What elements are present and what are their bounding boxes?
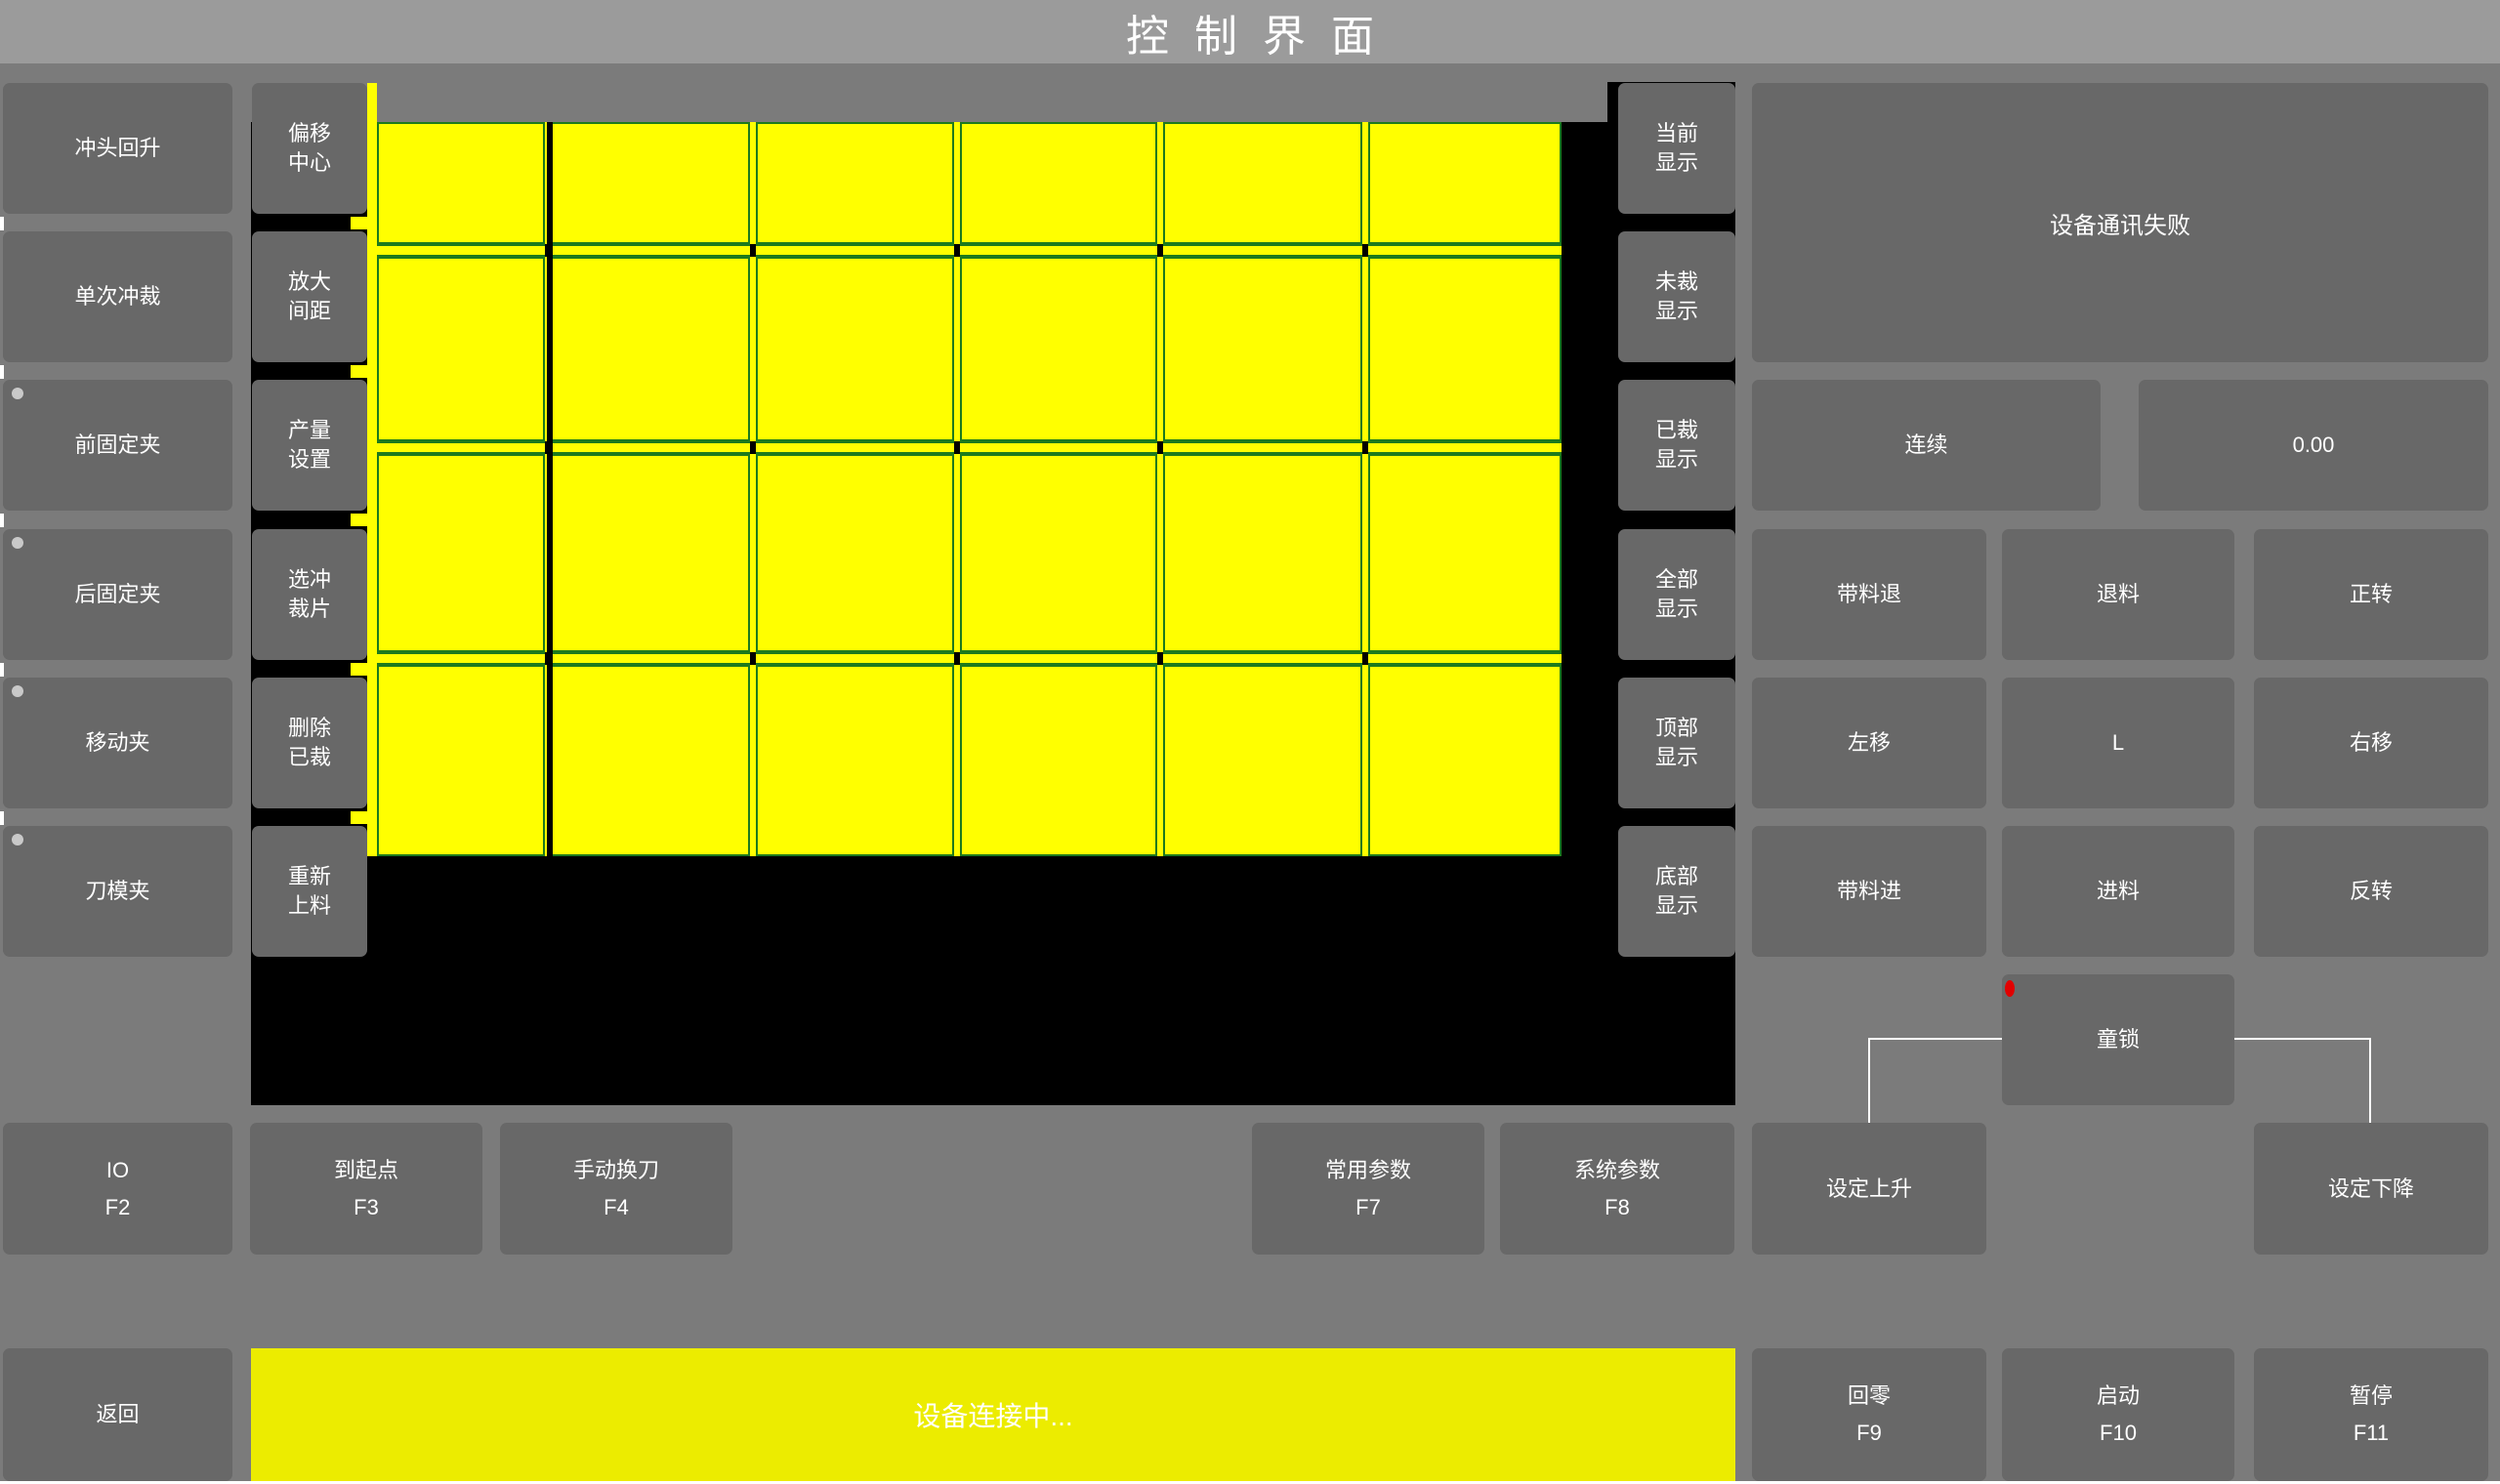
- button-label: 间距: [288, 297, 331, 326]
- button-label: 放大: [288, 268, 331, 297]
- button-label: 显示: [1655, 445, 1698, 474]
- manual-tool-change-f4-button[interactable]: 手动换刀 F4: [500, 1123, 732, 1255]
- move-left-button[interactable]: 左移: [1752, 678, 1986, 808]
- separator-segment: [377, 652, 545, 665]
- button-label: 选冲: [288, 565, 331, 595]
- button-label: 显示: [1655, 148, 1698, 178]
- left-edge-tick: [0, 663, 4, 677]
- button-label: 设定上升: [1826, 1175, 1912, 1204]
- button-label: 已裁: [1655, 416, 1698, 445]
- grid-row: [377, 257, 1562, 441]
- move-right-button[interactable]: 右移: [2254, 678, 2488, 808]
- offset-center-button[interactable]: 偏移 中心: [252, 83, 367, 214]
- button-label: 返回: [96, 1400, 139, 1429]
- button-label: 后固定夹: [74, 580, 160, 609]
- value-display[interactable]: 0.00: [2139, 380, 2488, 511]
- grid-cell[interactable]: [551, 665, 750, 856]
- grid-row: [377, 122, 1562, 244]
- grid-cell[interactable]: [377, 665, 545, 856]
- io-f2-button[interactable]: IO F2: [3, 1123, 232, 1255]
- separator-segment: [551, 652, 750, 665]
- separator-segment: [960, 441, 1157, 454]
- child-lock-button[interactable]: 童锁: [2002, 974, 2234, 1105]
- button-label: 退料: [2097, 580, 2140, 609]
- button-label: 顶部: [1655, 714, 1698, 743]
- strip-tab: [351, 217, 368, 229]
- button-label: 设定下降: [2328, 1175, 2414, 1204]
- button-label: 带料进: [1837, 877, 1901, 906]
- single-punch-button[interactable]: 单次冲裁: [3, 231, 232, 362]
- grid-cell[interactable]: [960, 257, 1157, 441]
- fkey-label: F10: [2100, 1419, 2137, 1448]
- button-label: 常用参数: [1325, 1156, 1411, 1185]
- separator-segment: [551, 244, 750, 257]
- select-piece-button[interactable]: 选冲 裁片: [252, 529, 367, 660]
- reload-material-button[interactable]: 重新 上料: [252, 826, 367, 957]
- rear-clamp-button[interactable]: 后固定夹: [3, 529, 232, 660]
- left-edge-tick: [0, 217, 4, 230]
- continuous-mode-button[interactable]: 连续: [1752, 380, 2101, 511]
- grid-cell[interactable]: [1368, 665, 1562, 856]
- grid-cell[interactable]: [756, 122, 954, 244]
- set-lower-button[interactable]: 设定下降: [2254, 1123, 2488, 1255]
- state-indicator: [12, 834, 23, 845]
- strip-tab: [351, 663, 368, 676]
- button-label: 删除: [288, 714, 331, 743]
- separator-segment: [1163, 244, 1362, 257]
- left-edge-tick: [0, 514, 4, 527]
- back-button[interactable]: 返回: [3, 1348, 232, 1481]
- button-label: 暂停: [2350, 1381, 2393, 1411]
- die-clamp-button[interactable]: 刀模夹: [3, 826, 232, 957]
- forward-rotate-button[interactable]: 正转: [2254, 529, 2488, 660]
- cut-grid: [377, 122, 1562, 856]
- connector-line: [1868, 1038, 2002, 1040]
- strip-feed-button[interactable]: 带料进: [1752, 826, 1986, 957]
- fkey-label: F4: [604, 1193, 629, 1222]
- button-label: 显示: [1655, 891, 1698, 921]
- connector-line: [2369, 1038, 2371, 1123]
- fkey-label: F7: [1355, 1193, 1381, 1222]
- fkey-label: F8: [1604, 1193, 1630, 1222]
- separator-segment: [756, 244, 954, 257]
- connection-status-text: 设备连接中...: [913, 1395, 1072, 1434]
- connector-line: [1868, 1038, 1870, 1123]
- strip-tab: [351, 811, 368, 824]
- button-label: 刀模夹: [85, 877, 149, 906]
- start-f10-button[interactable]: 启动 F10: [2002, 1348, 2234, 1481]
- button-label: 移动夹: [85, 728, 149, 758]
- grid-cell[interactable]: [1163, 122, 1362, 244]
- separator-segment: [756, 652, 954, 665]
- fkey-label: F3: [354, 1193, 379, 1222]
- view-cut-button[interactable]: 已裁 显示: [1618, 380, 1735, 511]
- grid-cell[interactable]: [1163, 257, 1362, 441]
- left-edge-tick: [0, 811, 4, 825]
- button-label: 重新: [288, 862, 331, 891]
- button-label: 手动换刀: [573, 1156, 659, 1185]
- strip-back-button[interactable]: 带料退: [1752, 529, 1986, 660]
- fkey-label: F9: [1856, 1419, 1882, 1448]
- button-label: 设置: [288, 445, 331, 474]
- strip-tab: [351, 365, 368, 378]
- control-screen: { "title_bar": { "title": "控制界面" }, "lef…: [0, 0, 2500, 1484]
- title-bar: 控制界面: [0, 0, 2500, 63]
- grid-cell[interactable]: [1368, 122, 1562, 244]
- grid-cell[interactable]: [1368, 454, 1562, 652]
- button-label: 系统参数: [1574, 1156, 1660, 1185]
- fkey-label: F2: [105, 1193, 131, 1222]
- button-label: 上料: [288, 891, 331, 921]
- button-label: 未裁: [1655, 268, 1698, 297]
- button-label: 裁片: [288, 595, 331, 624]
- view-bottom-button[interactable]: 底部 显示: [1618, 826, 1735, 957]
- view-top-button[interactable]: 顶部 显示: [1618, 678, 1735, 808]
- fkey-label: F11: [2354, 1419, 2389, 1448]
- button-label: 连续: [1904, 431, 1947, 460]
- strip-tab: [351, 514, 368, 526]
- grid-row-separator: [377, 441, 1562, 454]
- grid-cell[interactable]: [551, 454, 750, 652]
- punch-return-button[interactable]: 冲头回升: [3, 83, 232, 214]
- grid-cell[interactable]: [377, 122, 545, 244]
- status-message-text: 设备通讯失败: [2050, 206, 2190, 240]
- button-label: 已裁: [288, 743, 331, 772]
- go-start-f3-button[interactable]: 到起点 F3: [250, 1123, 482, 1255]
- separator-segment: [551, 441, 750, 454]
- separator-segment: [1368, 441, 1562, 454]
- film-strip: [367, 83, 377, 856]
- button-label: L: [2112, 728, 2124, 758]
- grid-cell[interactable]: [551, 257, 750, 441]
- button-label: 冲头回升: [74, 134, 160, 163]
- view-uncut-button[interactable]: 未裁 显示: [1618, 231, 1735, 362]
- separator-segment: [377, 244, 545, 257]
- grid-cell[interactable]: [756, 665, 954, 856]
- button-label: 全部: [1655, 565, 1698, 595]
- grid-row-separator: [377, 244, 1562, 257]
- grid-cell[interactable]: [756, 257, 954, 441]
- reverse-rotate-button[interactable]: 反转: [2254, 826, 2488, 957]
- button-label: 偏移: [288, 119, 331, 148]
- grid-cell[interactable]: [377, 257, 545, 441]
- button-label: 到起点: [334, 1156, 398, 1185]
- enlarge-spacing-button[interactable]: 放大 间距: [252, 231, 367, 362]
- system-params-f8-button[interactable]: 系统参数 F8: [1500, 1123, 1734, 1255]
- delete-cut-button[interactable]: 删除 已裁: [252, 678, 367, 808]
- separator-segment: [1163, 652, 1362, 665]
- separator-segment: [377, 441, 545, 454]
- value-text: 0.00: [2293, 431, 2335, 460]
- grid-cell[interactable]: [960, 665, 1157, 856]
- button-label: 当前: [1655, 119, 1698, 148]
- connector-line: [2234, 1038, 2371, 1040]
- button-label: 右移: [2350, 728, 2393, 758]
- grid-cell[interactable]: [1163, 454, 1362, 652]
- state-indicator: [12, 685, 23, 697]
- button-label: 底部: [1655, 862, 1698, 891]
- grid-row: [377, 454, 1562, 652]
- lock-l-button[interactable]: L: [2002, 678, 2234, 808]
- view-all-button[interactable]: 全部 显示: [1618, 529, 1735, 660]
- grid-cell[interactable]: [960, 454, 1157, 652]
- view-current-button[interactable]: 当前 显示: [1618, 83, 1735, 214]
- moving-clamp-button[interactable]: 移动夹: [3, 678, 232, 808]
- feed-button[interactable]: 进料: [2002, 826, 2234, 957]
- connection-status-bar: 设备连接中...: [251, 1348, 1735, 1481]
- left-edge-tick: [0, 365, 4, 379]
- grid-cell[interactable]: [756, 454, 954, 652]
- state-indicator: [12, 537, 23, 549]
- common-params-f7-button[interactable]: 常用参数 F7: [1252, 1123, 1484, 1255]
- page-title: 控制界面: [1101, 1, 1399, 63]
- grid-row-separator: [377, 652, 1562, 665]
- button-label: 左移: [1848, 728, 1891, 758]
- cut-line: [547, 122, 553, 856]
- alert-dot: [2005, 980, 2015, 997]
- set-rise-button[interactable]: 设定上升: [1752, 1123, 1986, 1255]
- front-clamp-button[interactable]: 前固定夹: [3, 380, 232, 511]
- grid-cell[interactable]: [551, 122, 750, 244]
- separator-segment: [1163, 441, 1362, 454]
- separator-segment: [960, 652, 1157, 665]
- separator-segment: [1368, 244, 1562, 257]
- button-label: 中心: [288, 148, 331, 178]
- button-label: 显示: [1655, 743, 1698, 772]
- button-label: 产量: [288, 416, 331, 445]
- grid-cell[interactable]: [1368, 257, 1562, 441]
- device-status-message: 设备通讯失败: [1752, 83, 2488, 362]
- button-label: 启动: [2097, 1381, 2140, 1411]
- button-label: 反转: [2350, 877, 2393, 906]
- separator-segment: [756, 441, 954, 454]
- unload-button[interactable]: 退料: [2002, 529, 2234, 660]
- grid-cell[interactable]: [377, 454, 545, 652]
- home-f9-button[interactable]: 回零 F9: [1752, 1348, 1986, 1481]
- button-label: 显示: [1655, 595, 1698, 624]
- state-indicator: [12, 388, 23, 399]
- grid-cell[interactable]: [960, 122, 1157, 244]
- button-label: 正转: [2350, 580, 2393, 609]
- button-label: 单次冲裁: [74, 282, 160, 311]
- button-label: 回零: [1848, 1381, 1891, 1411]
- grid-row: [377, 665, 1562, 856]
- button-label: IO: [106, 1156, 129, 1185]
- output-setting-button[interactable]: 产量 设置: [252, 380, 367, 511]
- button-label: 童锁: [2097, 1025, 2140, 1054]
- button-label: 前固定夹: [74, 431, 160, 460]
- grid-cell[interactable]: [1163, 665, 1362, 856]
- pause-f11-button[interactable]: 暂停 F11: [2254, 1348, 2488, 1481]
- separator-segment: [960, 244, 1157, 257]
- button-label: 进料: [2097, 877, 2140, 906]
- button-label: 显示: [1655, 297, 1698, 326]
- button-label: 带料退: [1837, 580, 1901, 609]
- separator-segment: [1368, 652, 1562, 665]
